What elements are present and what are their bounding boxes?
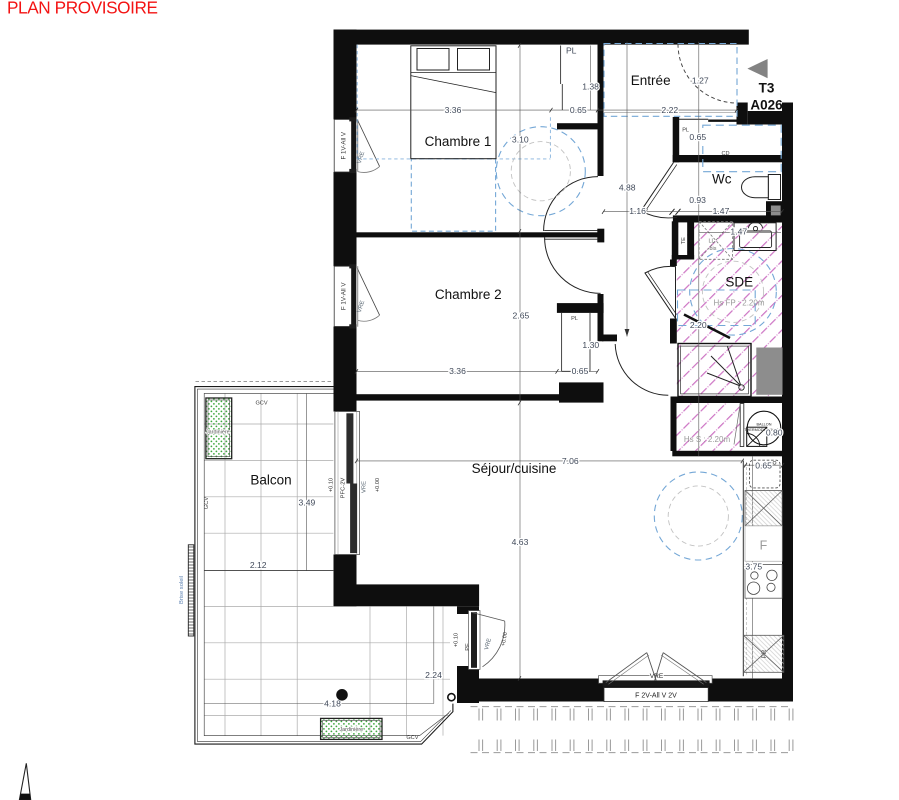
- svg-text:PL: PL: [682, 128, 689, 134]
- svg-text:LL: LL: [709, 239, 715, 245]
- svg-text:SDE: SDE: [725, 275, 753, 290]
- svg-text:+0.00: +0.00: [375, 478, 381, 492]
- svg-text:3.49: 3.49: [299, 498, 316, 508]
- svg-text:7.06: 7.06: [562, 456, 579, 466]
- svg-text:4.88: 4.88: [619, 182, 636, 192]
- svg-text:PLAN PROVISOIRE: PLAN PROVISOIRE: [7, 0, 158, 18]
- svg-text:4.18: 4.18: [324, 699, 341, 709]
- svg-text:Chambre 1: Chambre 1: [425, 134, 492, 149]
- svg-text:VRE: VRE: [357, 300, 367, 314]
- svg-text:0.93: 0.93: [689, 195, 706, 205]
- svg-text:PFC-2V: PFC-2V: [341, 478, 347, 499]
- svg-text:1.47: 1.47: [713, 206, 730, 216]
- svg-text:TE: TE: [681, 237, 687, 244]
- svg-text:PL: PL: [566, 45, 577, 55]
- svg-text:F 2V-All V 2V: F 2V-All V 2V: [635, 692, 677, 699]
- svg-text:F 1V-All V: F 1V-All V: [340, 131, 347, 159]
- svg-text:2.65: 2.65: [513, 311, 530, 321]
- svg-text:1.30: 1.30: [582, 340, 599, 350]
- svg-text:4.63: 4.63: [512, 537, 529, 547]
- svg-text:2.22: 2.22: [661, 105, 678, 115]
- svg-text:GCV: GCV: [406, 735, 418, 741]
- svg-text:VRE: VRE: [357, 151, 367, 165]
- svg-text:2.20: 2.20: [690, 320, 707, 330]
- svg-text:+0.00: +0.00: [501, 632, 509, 647]
- svg-text:VRE: VRE: [361, 481, 367, 493]
- svg-text:1.27: 1.27: [692, 76, 709, 86]
- svg-text:Jardinière: Jardinière: [206, 430, 230, 436]
- svg-text:0.65: 0.65: [570, 105, 587, 115]
- svg-text:3.36: 3.36: [449, 366, 466, 376]
- svg-text:+0.10: +0.10: [329, 478, 335, 492]
- svg-text:VRE: VRE: [484, 638, 493, 651]
- svg-text:2.12: 2.12: [250, 560, 267, 570]
- svg-text:1.16: 1.16: [629, 206, 646, 216]
- svg-text:GCV: GCV: [204, 497, 210, 509]
- svg-text:Brise soleil: Brise soleil: [179, 576, 185, 604]
- svg-text:0.65: 0.65: [572, 366, 589, 376]
- svg-text:PR: PR: [761, 649, 768, 658]
- svg-text:Séjour/cuisine: Séjour/cuisine: [472, 461, 557, 476]
- svg-text:0.65: 0.65: [755, 460, 772, 470]
- svg-text:1.38: 1.38: [582, 81, 599, 91]
- svg-text:Hs S : 2.20m: Hs S : 2.20m: [684, 435, 731, 444]
- svg-text:bis: bis: [710, 246, 717, 252]
- svg-text:GCV: GCV: [255, 401, 267, 407]
- svg-text:T3: T3: [759, 80, 775, 95]
- svg-text:Entrée: Entrée: [631, 73, 671, 88]
- svg-text:Balcon: Balcon: [250, 473, 291, 488]
- svg-text:3.10: 3.10: [512, 135, 529, 145]
- svg-text:A026: A026: [750, 97, 783, 112]
- svg-text:Wc: Wc: [712, 171, 732, 186]
- svg-text:F 1V-All V: F 1V-All V: [340, 282, 347, 310]
- svg-text:0.65: 0.65: [689, 132, 706, 142]
- svg-text:1.47: 1.47: [730, 227, 747, 237]
- svg-text:F: F: [760, 539, 768, 553]
- svg-text:Chambre 2: Chambre 2: [435, 287, 502, 302]
- svg-text:PF: PF: [465, 643, 471, 651]
- svg-text:Hs FP : 2.20m: Hs FP : 2.20m: [714, 299, 765, 308]
- svg-text:2.24: 2.24: [425, 670, 442, 680]
- svg-text:3.75: 3.75: [745, 561, 762, 571]
- svg-text:PL: PL: [571, 316, 578, 322]
- svg-text:+0.10: +0.10: [454, 633, 460, 647]
- svg-text:0.80: 0.80: [766, 428, 783, 438]
- svg-text:3.36: 3.36: [445, 105, 462, 115]
- svg-text:Jardinière: Jardinière: [339, 727, 363, 733]
- svg-text:CD: CD: [721, 151, 729, 157]
- svg-text:BALLON: BALLON: [757, 423, 772, 427]
